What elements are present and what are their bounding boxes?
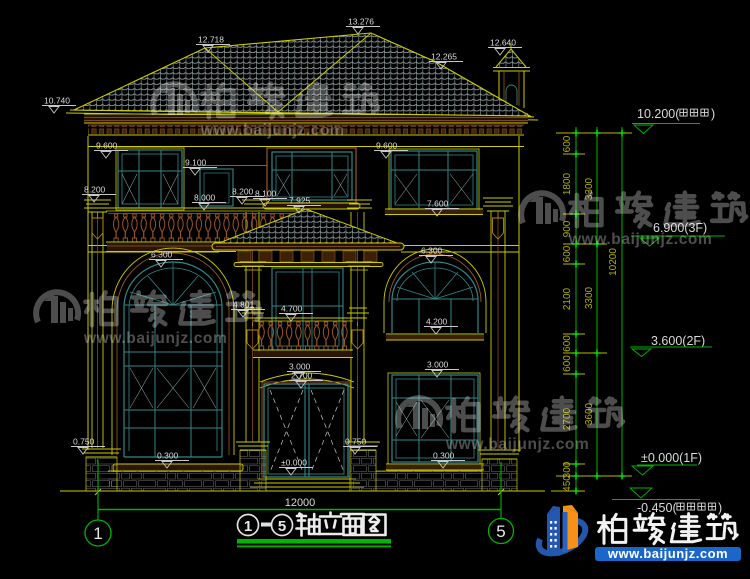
svg-text:3600: 3600 [584, 402, 595, 425]
svg-text:6.300: 6.300 [151, 250, 173, 260]
svg-text:12000: 12000 [285, 497, 316, 509]
svg-text:12.718: 12.718 [198, 35, 224, 45]
svg-text:0.750: 0.750 [73, 437, 95, 447]
svg-text:13.276: 13.276 [348, 17, 374, 27]
svg-text:10.200(: 10.200( [637, 107, 680, 121]
svg-text:www.baijunjz.com: www.baijunjz.com [83, 330, 227, 347]
svg-text:2.700: 2.700 [291, 371, 313, 381]
svg-text:1800: 1800 [562, 172, 573, 195]
svg-text:www.baijunjz.com: www.baijunjz.com [445, 436, 589, 453]
svg-text:3.600(2F): 3.600(2F) [651, 334, 705, 348]
svg-text:): ) [718, 501, 722, 515]
svg-text:8.100: 8.100 [255, 189, 277, 199]
svg-text:8.200: 8.200 [84, 185, 106, 195]
svg-text:9.100: 9.100 [185, 158, 207, 168]
svg-text:±0.000: ±0.000 [281, 458, 307, 468]
svg-text:12.640: 12.640 [490, 38, 516, 48]
svg-text:±0.000(1F): ±0.000(1F) [641, 451, 702, 465]
svg-text:450: 450 [562, 475, 573, 492]
svg-text:4.200: 4.200 [426, 317, 448, 327]
svg-text:0.750: 0.750 [345, 437, 367, 447]
svg-text:www.baijunjz.com: www.baijunjz.com [568, 231, 712, 248]
svg-text:1: 1 [244, 518, 252, 535]
svg-text:10200: 10200 [608, 248, 619, 276]
svg-text:600: 600 [562, 335, 573, 352]
svg-text:5: 5 [278, 518, 286, 535]
svg-text:): ) [711, 107, 715, 121]
svg-text:9.600: 9.600 [96, 141, 118, 151]
svg-text:12.265: 12.265 [431, 52, 457, 62]
svg-text:7.925: 7.925 [289, 196, 311, 206]
svg-text:600: 600 [562, 355, 573, 372]
svg-text:www.baijunjz.com: www.baijunjz.com [200, 122, 344, 139]
svg-text:-0.450(: -0.450( [637, 501, 677, 515]
svg-text:7.600: 7.600 [427, 199, 449, 209]
svg-text:3300: 3300 [584, 286, 595, 309]
svg-text:3.000: 3.000 [427, 360, 449, 370]
svg-text:4.700: 4.700 [281, 304, 303, 314]
svg-text:6.300: 6.300 [421, 246, 443, 256]
svg-text:9.600: 9.600 [376, 141, 398, 151]
svg-text:10.740: 10.740 [44, 96, 70, 106]
svg-text:1: 1 [93, 524, 102, 543]
svg-text:5: 5 [496, 522, 505, 541]
svg-text:8.000: 8.000 [194, 193, 216, 203]
svg-text:2100: 2100 [562, 287, 573, 310]
svg-text:www.baijunjz.com: www.baijunjz.com [607, 546, 728, 561]
svg-text:8.200: 8.200 [232, 187, 254, 197]
svg-text:600: 600 [562, 135, 573, 152]
svg-text:0.300: 0.300 [157, 451, 179, 461]
